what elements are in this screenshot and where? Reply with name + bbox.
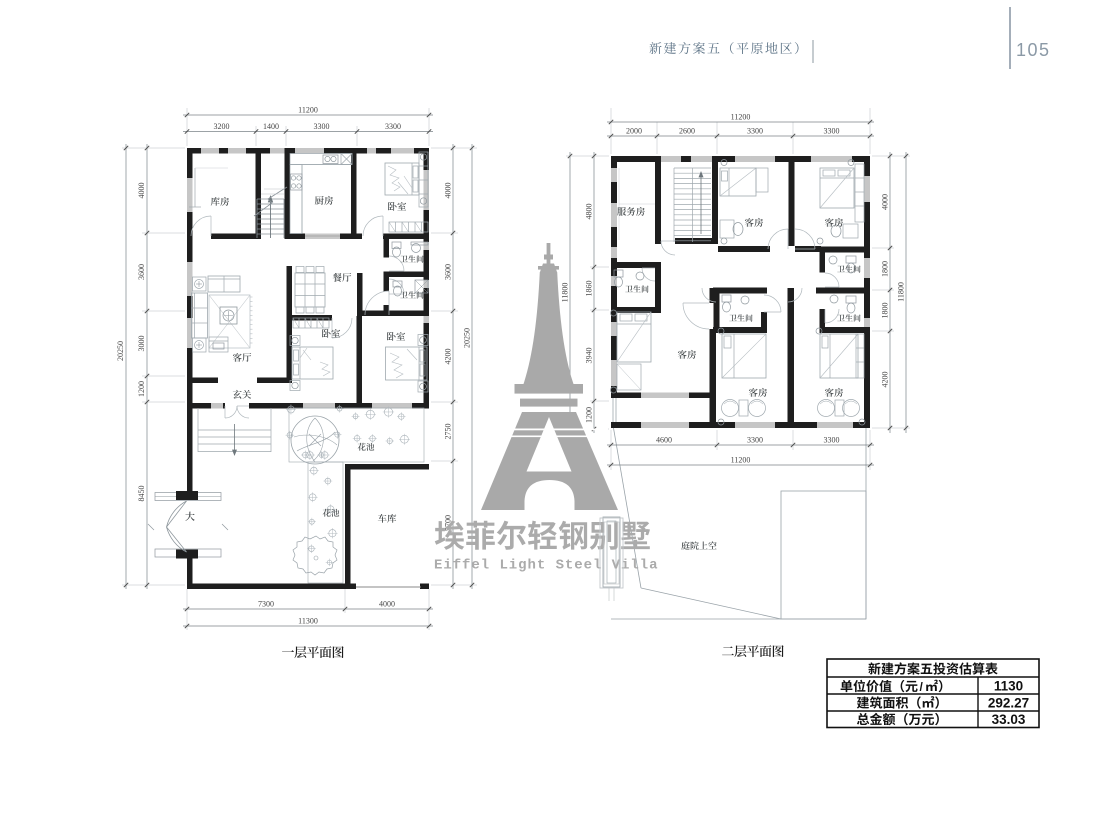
svg-text:3300: 3300	[385, 122, 401, 131]
svg-text:105: 105	[1016, 40, 1051, 60]
svg-text:1800: 1800	[881, 303, 890, 319]
svg-text:3940: 3940	[585, 348, 594, 364]
svg-text:3300: 3300	[314, 122, 330, 131]
svg-text:20250: 20250	[116, 341, 125, 361]
svg-text:3300: 3300	[747, 127, 763, 136]
svg-text:1130: 1130	[994, 679, 1023, 694]
svg-text:11200: 11200	[731, 113, 751, 122]
svg-text:1860: 1860	[585, 281, 594, 297]
svg-text:1400: 1400	[263, 122, 279, 131]
svg-text:11200: 11200	[731, 456, 751, 465]
svg-text:3300: 3300	[747, 436, 763, 445]
svg-text:1200: 1200	[585, 407, 594, 423]
svg-text:Eiffel Light Steel Villa: Eiffel Light Steel Villa	[434, 558, 658, 574]
svg-text:8450: 8450	[137, 486, 146, 502]
svg-text:4000: 4000	[379, 600, 395, 609]
svg-text:1800: 1800	[881, 261, 890, 277]
svg-text:4600: 4600	[656, 436, 672, 445]
svg-text:4000: 4000	[444, 183, 453, 199]
svg-text:3000: 3000	[137, 336, 146, 352]
svg-text:2600: 2600	[679, 127, 695, 136]
svg-text:11800: 11800	[561, 283, 570, 303]
svg-text:2000: 2000	[626, 127, 642, 136]
svg-text:3300: 3300	[824, 436, 840, 445]
svg-text:4200: 4200	[881, 372, 890, 388]
svg-text:1200: 1200	[137, 381, 146, 397]
svg-text:33.03: 33.03	[992, 712, 1026, 727]
svg-text:11300: 11300	[298, 617, 318, 626]
svg-text:3300: 3300	[824, 127, 840, 136]
svg-text:4800: 4800	[585, 204, 594, 220]
svg-text:3600: 3600	[137, 264, 146, 280]
svg-text:11800: 11800	[897, 282, 906, 302]
svg-text:4000: 4000	[881, 194, 890, 210]
svg-text:7300: 7300	[258, 600, 274, 609]
svg-text:4000: 4000	[137, 183, 146, 199]
svg-text:292.27: 292.27	[988, 696, 1029, 711]
svg-text:2750: 2750	[444, 424, 453, 440]
svg-text:11200: 11200	[298, 106, 318, 115]
svg-text:3600: 3600	[444, 264, 453, 280]
svg-text:3200: 3200	[214, 122, 230, 131]
svg-text:20250: 20250	[463, 328, 472, 348]
svg-text:4200: 4200	[444, 349, 453, 365]
